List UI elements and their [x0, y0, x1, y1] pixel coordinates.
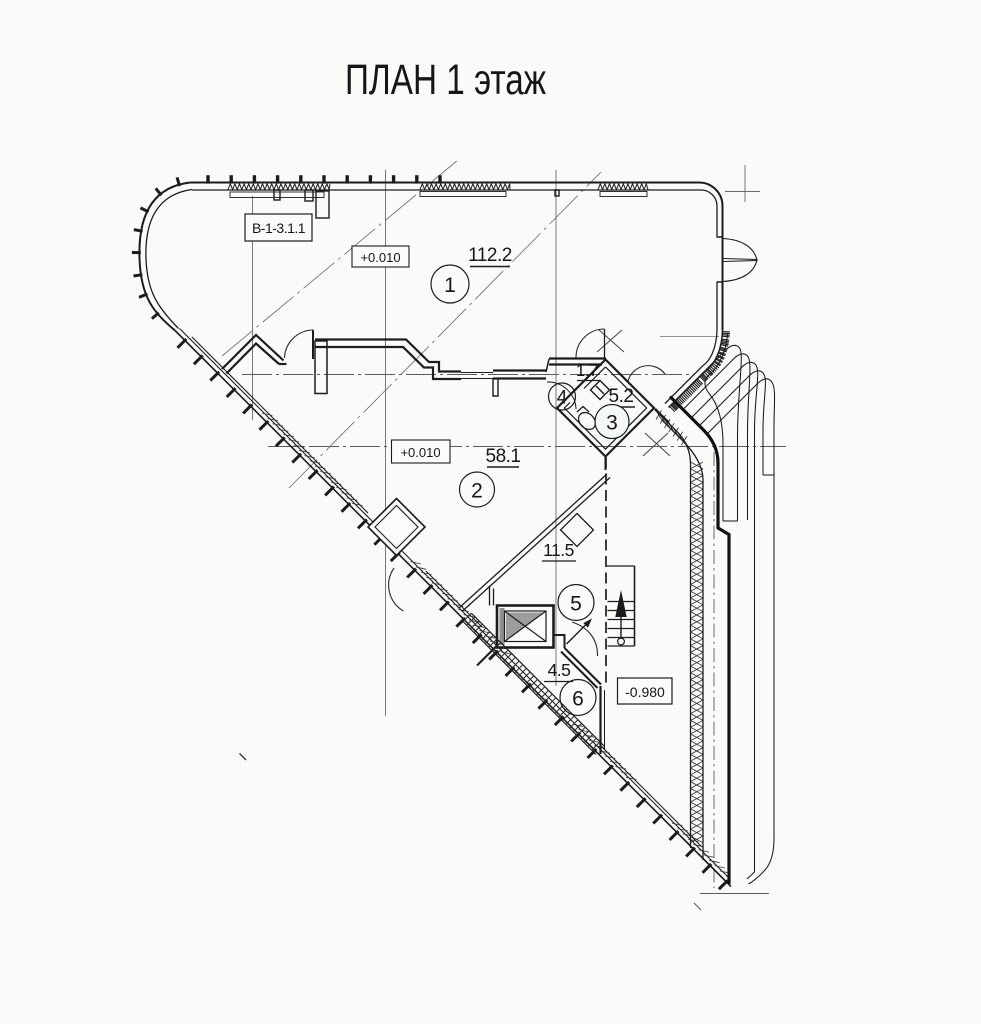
svg-text:58.1: 58.1 — [486, 446, 521, 467]
svg-text:+0.010: +0.010 — [400, 445, 440, 460]
svg-text:ПЛАН 1 этаж: ПЛАН 1 этаж — [345, 56, 546, 104]
svg-text:5: 5 — [570, 593, 582, 616]
svg-text:-0.980: -0.980 — [625, 684, 665, 700]
svg-text:11.5: 11.5 — [543, 540, 574, 560]
svg-text:2: 2 — [471, 480, 483, 503]
svg-text:1: 1 — [444, 274, 456, 297]
svg-text:+0.010: +0.010 — [360, 250, 400, 265]
svg-text:3: 3 — [606, 412, 618, 435]
svg-text:6: 6 — [572, 688, 584, 711]
svg-text:В-1-3.1.1: В-1-3.1.1 — [252, 220, 306, 236]
svg-text:4.5: 4.5 — [548, 660, 571, 680]
svg-text:112.2: 112.2 — [468, 245, 512, 266]
svg-text:5.2: 5.2 — [609, 386, 634, 407]
